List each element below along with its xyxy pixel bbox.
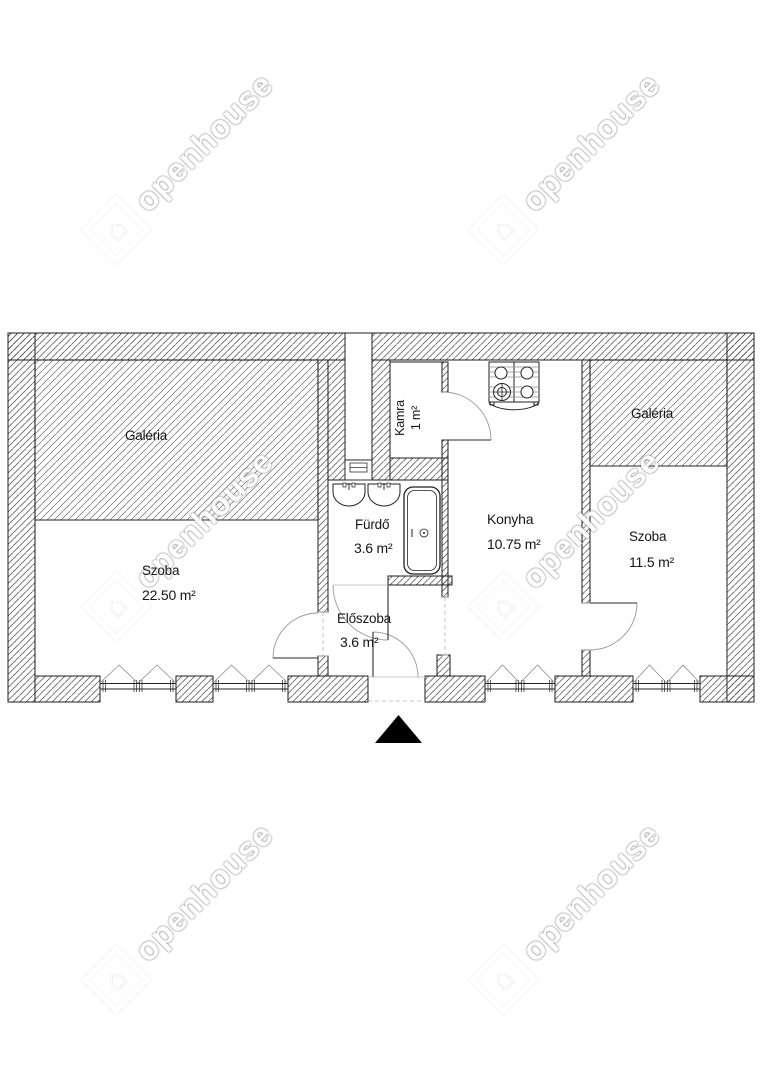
room-label-gallery-right: Galéria [631, 407, 673, 421]
stove-icon [489, 362, 539, 410]
wall-pantry-right-pier [442, 362, 448, 392]
light-shaft [345, 333, 372, 480]
room-label-gallery-left: Galéria [125, 429, 167, 443]
wall-bath-right [442, 440, 448, 597]
window-room-left-1 [100, 665, 176, 692]
door-arc-room-right [590, 603, 637, 650]
wall-hall-kitchen-pier [437, 655, 450, 676]
room-label-bathroom-name: Fürdő [355, 518, 389, 532]
room-label-kitchen-name: Konyha [487, 512, 533, 526]
wall-room-hall-upper [318, 360, 328, 612]
entrance-arrow-icon [375, 715, 422, 743]
window-room-left-2 [213, 665, 288, 692]
wall-outer-top-right [372, 333, 754, 360]
floorplan-page: ⌂ openhouse ⌂ openhouse ⌂ openhouse ⌂ op… [0, 0, 763, 1080]
wall-bottom-pier-2 [176, 676, 213, 702]
room-label-pantry-area: 1 m² [410, 406, 423, 430]
wall-kitchen-room-upper [582, 360, 590, 603]
wall-bottom-pier-4 [425, 676, 485, 702]
door-arc-entrance [373, 632, 418, 677]
room-label-hall-area: 3.6 m² [340, 635, 378, 649]
wall-room-hall-lower [318, 656, 328, 676]
window-room-right [633, 665, 700, 692]
wall-bath-bottom [388, 576, 452, 585]
wall-beside-shaft [328, 360, 345, 480]
room-label-room-left-area: 22.50 m² [142, 588, 196, 602]
wall-bottom-pier-1 [35, 676, 100, 702]
sink-icon-2 [368, 483, 400, 506]
room-label-kitchen-area: 10.75 m² [487, 537, 541, 551]
wall-bottom-pier-5 [555, 676, 633, 702]
room-label-pantry-name: Kamra [394, 400, 407, 436]
room-label-room-left-name: Szoba [142, 564, 179, 578]
shaft-opening [345, 333, 372, 460]
door-arc-pantry [443, 392, 491, 440]
gallery-left-area [35, 360, 318, 520]
wall-pantry-bottom [390, 458, 448, 480]
bathtub-icon [404, 487, 440, 574]
wall-outer-left [8, 333, 35, 702]
wall-bottom-pier-6 [700, 676, 754, 702]
room-label-room-right-area: 11.5 m² [629, 555, 674, 569]
room-label-bathroom-area: 3.6 m² [354, 541, 392, 555]
sink-icon-1 [333, 483, 365, 506]
wall-bottom-pier-3 [288, 676, 368, 702]
room-label-hall-name: Előszoba [337, 612, 391, 626]
room-label-room-right-name: Szoba [629, 530, 666, 544]
wall-kitchen-room-lower [582, 650, 590, 676]
room-label-pantry: Kamra 1 m² [383, 388, 433, 448]
door-arc-room-left [273, 613, 318, 658]
wall-outer-right [727, 333, 754, 702]
wall-outer-top-left [8, 333, 345, 360]
shaft-window-icon [350, 463, 367, 472]
window-kitchen [485, 665, 555, 692]
